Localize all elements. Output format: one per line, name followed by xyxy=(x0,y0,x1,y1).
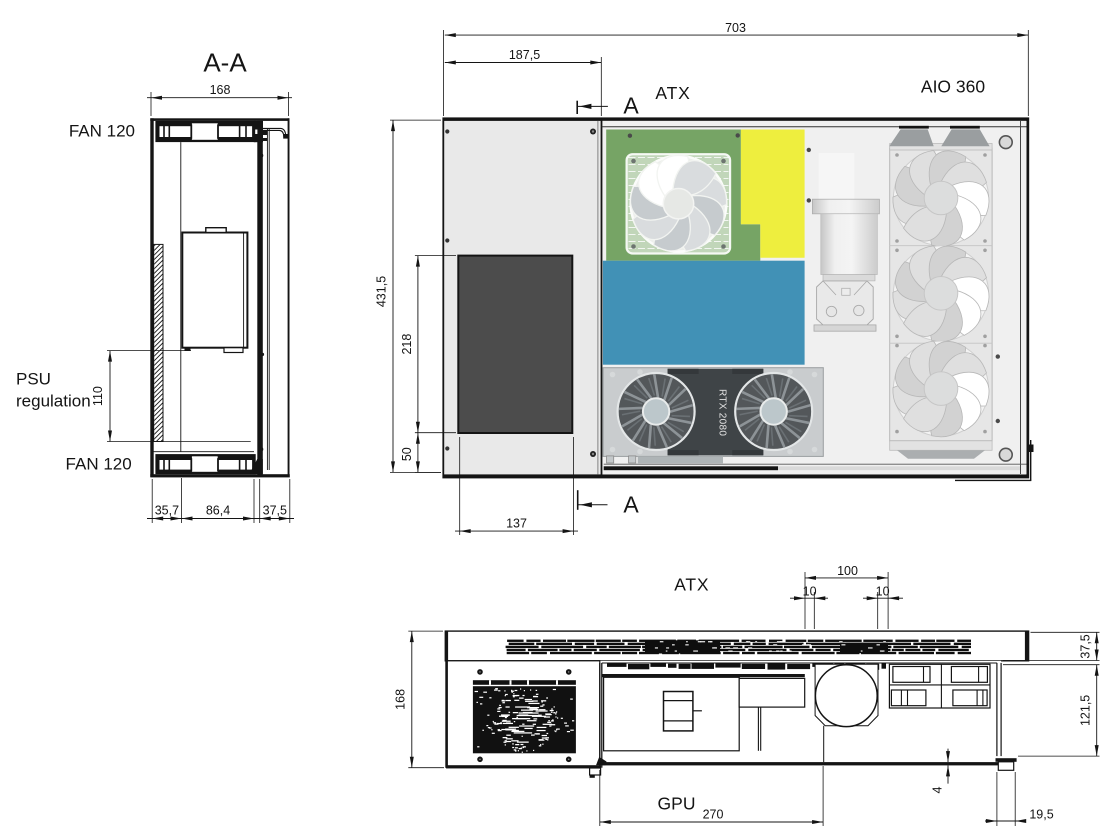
svg-text:100: 100 xyxy=(837,564,858,578)
svg-text:168: 168 xyxy=(394,689,408,710)
svg-text:50: 50 xyxy=(400,447,414,461)
svg-text:ATX: ATX xyxy=(674,575,709,595)
svg-text:A: A xyxy=(623,93,639,119)
svg-text:A: A xyxy=(623,492,639,518)
svg-text:703: 703 xyxy=(725,21,746,35)
svg-text:FAN 120: FAN 120 xyxy=(66,455,132,474)
svg-text:37,5: 37,5 xyxy=(263,504,287,518)
svg-text:AIO 360: AIO 360 xyxy=(921,77,985,97)
svg-text:187,5: 187,5 xyxy=(509,48,540,62)
svg-text:FAN 120: FAN 120 xyxy=(69,122,135,141)
svg-text:218: 218 xyxy=(400,334,414,355)
svg-text:ATX: ATX xyxy=(655,83,690,103)
svg-text:37,5: 37,5 xyxy=(1079,634,1093,658)
svg-text:86,4: 86,4 xyxy=(206,504,230,518)
svg-text:19,5: 19,5 xyxy=(1029,808,1053,822)
svg-text:121,5: 121,5 xyxy=(1079,695,1093,726)
svg-text:270: 270 xyxy=(703,808,724,822)
svg-text:PSU: PSU xyxy=(16,370,51,389)
svg-text:regulation: regulation xyxy=(16,392,91,411)
svg-text:431,5: 431,5 xyxy=(375,276,389,307)
svg-text:4: 4 xyxy=(931,786,945,793)
svg-text:A-A: A-A xyxy=(203,48,247,78)
svg-text:110: 110 xyxy=(91,386,105,406)
svg-text:RTX 2080: RTX 2080 xyxy=(717,389,728,436)
svg-text:137: 137 xyxy=(506,517,527,531)
svg-text:168: 168 xyxy=(210,83,231,97)
svg-text:35,7: 35,7 xyxy=(155,504,179,518)
svg-text:GPU: GPU xyxy=(658,794,696,814)
